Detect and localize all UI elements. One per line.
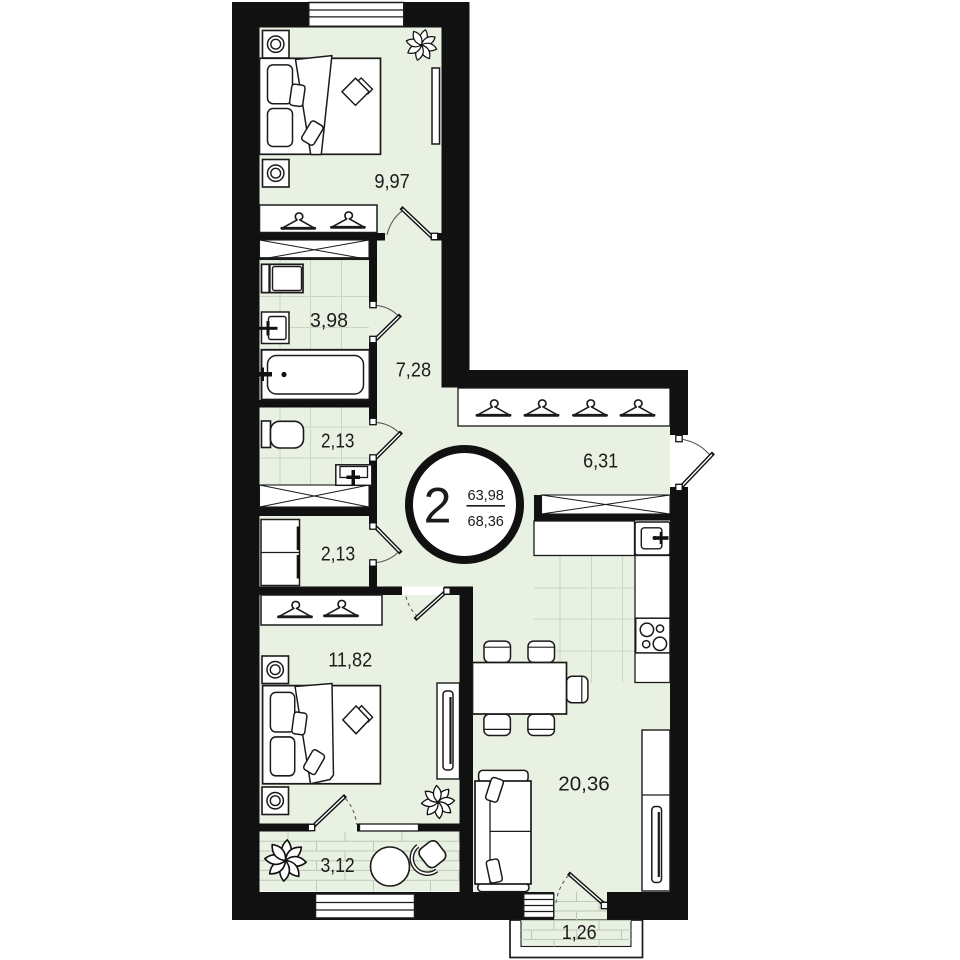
svg-text:11,82: 11,82 (328, 648, 372, 671)
svg-text:7,28: 7,28 (396, 359, 431, 382)
svg-text:2,13: 2,13 (321, 543, 355, 566)
svg-text:1,26: 1,26 (562, 921, 597, 944)
svg-text:20,36: 20,36 (558, 772, 610, 795)
svg-text:68,36: 68,36 (468, 513, 504, 530)
svg-text:3,98: 3,98 (310, 309, 348, 332)
svg-text:2: 2 (424, 478, 452, 534)
svg-text:6,31: 6,31 (583, 450, 618, 473)
svg-text:9,97: 9,97 (374, 170, 409, 193)
svg-text:63,98: 63,98 (468, 487, 504, 504)
svg-text:2,13: 2,13 (321, 429, 354, 452)
svg-text:3,12: 3,12 (320, 854, 354, 877)
